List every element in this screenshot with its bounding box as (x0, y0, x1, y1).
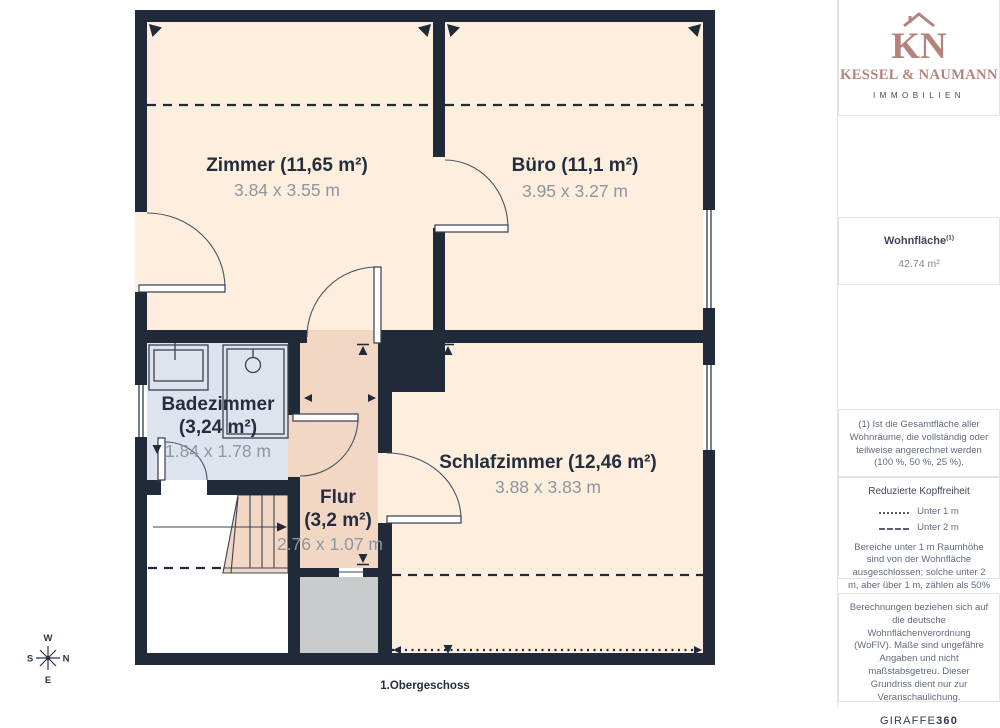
headroom-legend-box: Reduzierte Kopffreiheit Unter 1 m Unter … (838, 477, 1000, 579)
shaft-floor (300, 577, 378, 653)
kn-monogram-icon: KN (859, 10, 979, 64)
room-label-badezimmer-2: (3,24 m²) (179, 417, 257, 438)
dotted-line-icon (879, 512, 909, 514)
compass-n: N (63, 654, 70, 665)
floor-caption: 1.Obergeschoss (135, 680, 715, 692)
living-area-box: Wohnfläche(1) 42.74 m² (838, 217, 1000, 285)
staircase (153, 495, 288, 573)
compass-s: S (27, 654, 33, 665)
footnote-ref: (1) (946, 234, 954, 241)
room-label-schlafzimmer: Schlafzimmer (12,46 m²) (439, 452, 657, 473)
buero-floor (445, 22, 703, 330)
room-dim-schlafzimmer: 3.88 x 3.83 m (495, 477, 601, 497)
window-icon (703, 210, 715, 308)
legend-under-1m: Unter 1 m (847, 505, 991, 521)
dashed-line-icon (879, 528, 909, 530)
footnote-text: (1) Ist die Gesamtfläche aller Wohnräume… (850, 419, 989, 468)
disclaimer-box: Berechnungen beziehen sich auf die deuts… (838, 593, 1000, 702)
legend-label: Unter 1 m (917, 506, 959, 519)
room-dim-buero: 3.95 x 3.27 m (522, 181, 628, 201)
floorplan: Zimmer (11,65 m²) 3.84 x 3.55 m Büro (11… (135, 10, 715, 665)
company-name: KESSEL & NAUMANN (839, 66, 999, 86)
company-tagline: IMMOBILIEN (839, 91, 999, 102)
disclaimer-text: Berechnungen beziehen sich auf die deuts… (850, 602, 988, 703)
room-dim-zimmer: 3.84 x 3.55 m (234, 180, 340, 200)
legend-label: Unter 2 m (917, 522, 959, 535)
zimmer-floor (147, 22, 433, 330)
headroom-title: Reduzierte Kopffreiheit (847, 485, 991, 499)
legend-under-2m: Unter 2 m (847, 521, 991, 537)
room-label-zimmer: Zimmer (11,65 m²) (206, 155, 368, 176)
room-label-flur-2: (3,2 m²) (304, 510, 372, 531)
room-dim-badezimmer: 1.84 x 1.78 m (165, 441, 271, 461)
living-area-label: Wohnfläche(1) (839, 234, 999, 249)
window-icon (703, 365, 715, 450)
giraffe360-logo: GIRAFFE360 (848, 714, 990, 728)
window-icon (135, 385, 147, 437)
compass-rose: W N E S (16, 626, 80, 690)
room-label-flur: Flur (320, 487, 356, 508)
info-panel: KN KESSEL & NAUMANN IMMOBILIEN Wohnfläch… (837, 0, 1000, 707)
svg-text:KN: KN (891, 26, 947, 64)
compass-e: E (45, 675, 51, 686)
room-label-buero: Büro (11,1 m²) (512, 155, 639, 176)
brand-logo: KN KESSEL & NAUMANN IMMOBILIEN (838, 0, 1000, 116)
room-dim-flur: 2.76 x 1.07 m (277, 534, 383, 554)
footnote-box: (1) Ist die Gesamtfläche aller Wohnräume… (838, 409, 1000, 477)
living-area-value: 42.74 m² (839, 257, 999, 271)
room-label-badezimmer: Badezimmer (162, 394, 276, 415)
compass-w: W (44, 633, 53, 644)
